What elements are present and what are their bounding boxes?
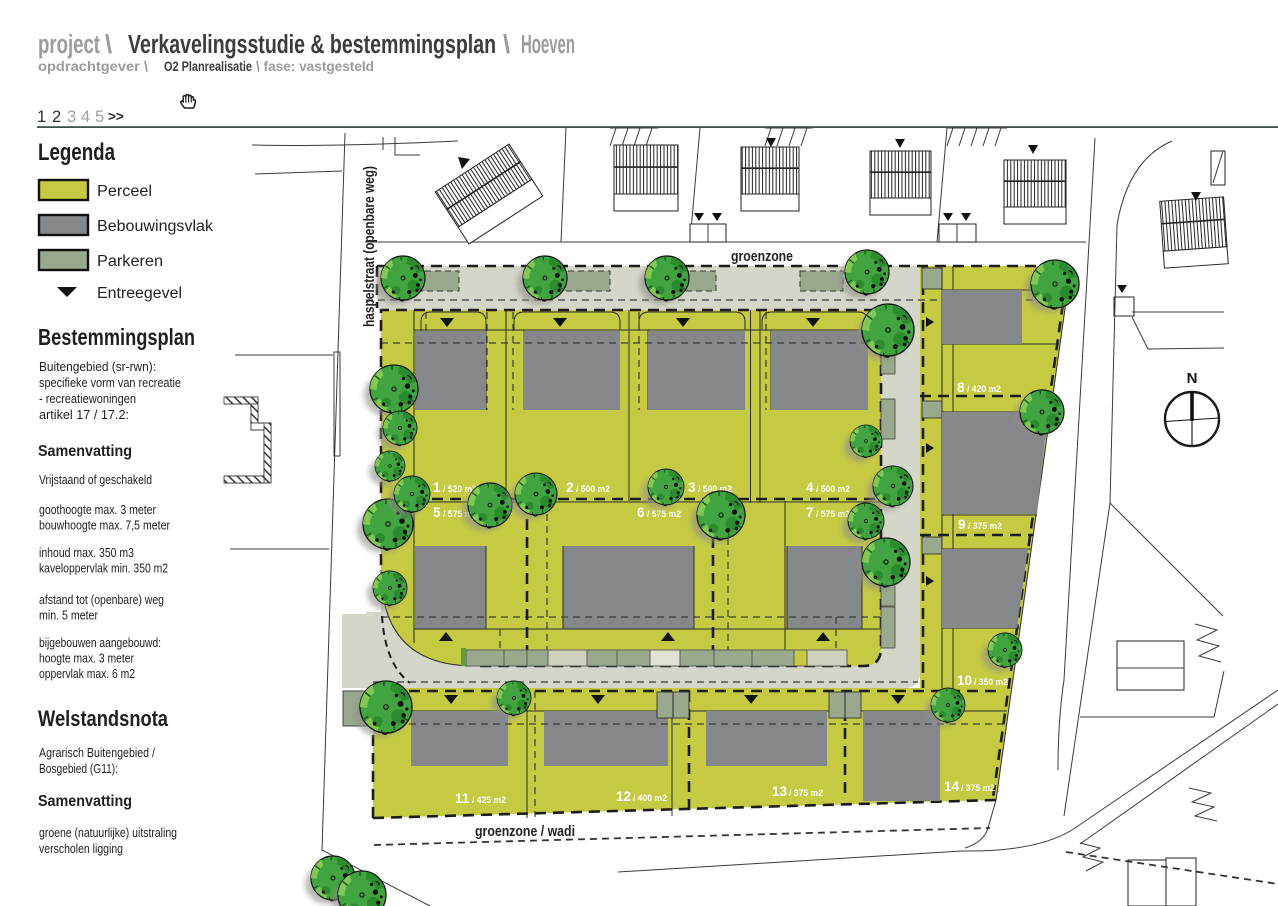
svg-text:Samenvatting: Samenvatting xyxy=(38,793,132,810)
svg-text:Bestemmingsplan: Bestemmingsplan xyxy=(38,324,195,350)
svg-text:/ 400 m2: / 400 m2 xyxy=(633,793,667,804)
svg-text:kaveloppervlak min. 350 m2: kaveloppervlak min. 350 m2 xyxy=(39,561,168,576)
svg-text:/ 375 m2: / 375 m2 xyxy=(789,788,823,799)
svg-text:3: 3 xyxy=(67,108,76,126)
svg-text:min. 5 meter: min. 5 meter xyxy=(39,608,98,623)
svg-text:4: 4 xyxy=(806,480,814,495)
svg-text:bouwhoogte max. 7,5 meter: bouwhoogte max. 7,5 meter xyxy=(39,518,170,533)
svg-text:oppervlak max. 6 m2: oppervlak max. 6 m2 xyxy=(39,666,135,681)
svg-text:specifieke vorm van recreatie: specifieke vorm van recreatie xyxy=(39,375,181,390)
svg-text:goothoogte max. 3 meter: goothoogte max. 3 meter xyxy=(39,502,156,517)
svg-text:9: 9 xyxy=(958,517,966,532)
svg-text:Entreegevel: Entreegevel xyxy=(97,285,182,302)
svg-text:/ 420 m2: / 420 m2 xyxy=(967,384,1001,395)
svg-text:bijgebouwen aangebouwd:: bijgebouwen aangebouwd: xyxy=(39,635,161,650)
svg-text:2: 2 xyxy=(52,108,61,126)
svg-text:\: \ xyxy=(503,31,510,59)
svg-text:/ 375 m2: / 375 m2 xyxy=(961,783,995,794)
svg-text:/ 350 m2: / 350 m2 xyxy=(974,677,1008,688)
svg-text:/ 500 m2: / 500 m2 xyxy=(816,484,850,495)
svg-text:10: 10 xyxy=(957,673,972,688)
svg-text:Agrarisch Buitengebied /: Agrarisch Buitengebied / xyxy=(39,745,155,760)
svg-text:/ 500 m2: / 500 m2 xyxy=(576,484,610,495)
svg-text:Hoeven: Hoeven xyxy=(521,31,575,59)
svg-text:\ fase: vastgesteld: \ fase: vastgesteld xyxy=(256,59,374,75)
svg-text:Vrijstaand of geschakeld: Vrijstaand of geschakeld xyxy=(39,472,152,487)
svg-text:5: 5 xyxy=(433,505,441,520)
svg-text:Welstandsnota: Welstandsnota xyxy=(38,706,168,731)
svg-text:groenzone: groenzone xyxy=(731,249,793,265)
svg-text:Samenvatting: Samenvatting xyxy=(38,443,132,460)
svg-text:8: 8 xyxy=(957,380,965,395)
svg-text:groenzone / wadi: groenzone / wadi xyxy=(475,823,575,840)
svg-text:3: 3 xyxy=(688,480,696,495)
svg-text:>>: >> xyxy=(108,109,124,124)
svg-text:afstand tot (openbare) weg: afstand tot (openbare) weg xyxy=(39,592,164,607)
svg-text:Bosgebied (G11):: Bosgebied (G11): xyxy=(39,761,118,776)
svg-text:opdrachtgever \: opdrachtgever \ xyxy=(38,59,148,75)
svg-text:Perceel: Perceel xyxy=(97,183,152,200)
svg-text:artikel 17 / 17.2:: artikel 17 / 17.2: xyxy=(39,407,129,422)
svg-text:inhoud max. 350 m3: inhoud max. 350 m3 xyxy=(39,545,134,560)
svg-text:6: 6 xyxy=(637,505,645,520)
svg-text:11: 11 xyxy=(455,791,470,806)
svg-text:2: 2 xyxy=(566,480,574,495)
svg-text:Verkavelingsstudie & bestemmin: Verkavelingsstudie & bestemmingsplan xyxy=(128,31,496,59)
svg-text:project: project xyxy=(38,31,100,59)
svg-text:7: 7 xyxy=(806,505,814,520)
svg-text:- recreatiewoningen: - recreatiewoningen xyxy=(39,391,136,406)
svg-text:/ 575 m2: / 575 m2 xyxy=(647,509,681,520)
svg-text:Bebouwingsvlak: Bebouwingsvlak xyxy=(97,218,213,235)
svg-text:O2 Planrealisatie: O2 Planrealisatie xyxy=(164,59,252,75)
svg-text:1: 1 xyxy=(433,480,441,495)
svg-text:\: \ xyxy=(105,31,112,59)
svg-text:13: 13 xyxy=(772,784,788,799)
svg-text:verscholen ligging: verscholen ligging xyxy=(39,841,123,856)
svg-text:14: 14 xyxy=(944,779,960,794)
svg-text:groene (natuurlijke) uitstrali: groene (natuurlijke) uitstraling xyxy=(39,825,177,840)
svg-text:hoogte max. 3 meter: hoogte max. 3 meter xyxy=(39,651,134,666)
svg-text:Legenda: Legenda xyxy=(38,139,116,166)
svg-text:Parkeren: Parkeren xyxy=(97,253,163,270)
svg-text:1: 1 xyxy=(37,108,46,126)
svg-text:haspelstraat (openbare weg): haspelstraat (openbare weg) xyxy=(361,166,378,327)
svg-text:/ 375 m2: / 375 m2 xyxy=(968,521,1002,532)
svg-text:/ 425 m2: / 425 m2 xyxy=(472,795,506,806)
svg-text:12: 12 xyxy=(616,789,631,804)
svg-text:N: N xyxy=(1187,370,1198,387)
svg-text:Buitengebied (sr-rwn):: Buitengebied (sr-rwn): xyxy=(39,359,156,374)
svg-text:4: 4 xyxy=(81,108,90,126)
svg-text:5: 5 xyxy=(95,108,104,126)
